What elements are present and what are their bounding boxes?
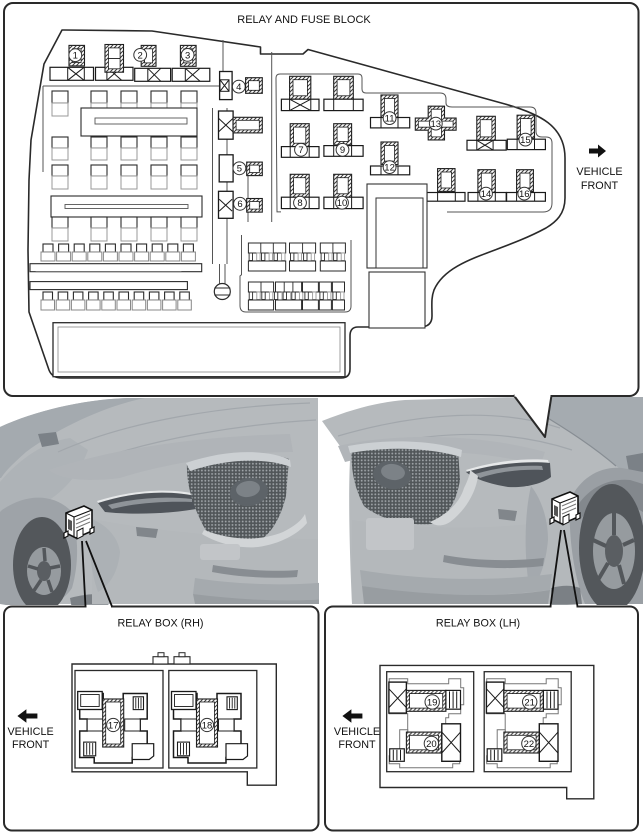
svg-text:FRONT: FRONT [12, 739, 50, 751]
svg-text:15: 15 [520, 135, 531, 146]
svg-text:20: 20 [426, 739, 437, 750]
svg-text:18: 18 [202, 720, 213, 731]
svg-text:2: 2 [138, 50, 143, 61]
svg-text:16: 16 [519, 189, 530, 200]
svg-text:9: 9 [340, 145, 345, 156]
svg-text:11: 11 [385, 114, 395, 125]
svg-text:4: 4 [236, 82, 241, 93]
svg-text:8: 8 [297, 198, 302, 209]
svg-text:FRONT: FRONT [338, 739, 376, 751]
svg-text:12: 12 [384, 163, 395, 174]
svg-text:10: 10 [337, 198, 348, 209]
svg-text:5: 5 [237, 164, 242, 175]
svg-text:VEHICLE: VEHICLE [334, 726, 380, 738]
svg-text:21: 21 [524, 697, 535, 708]
svg-text:3: 3 [185, 50, 190, 61]
svg-text:RELAY BOX (RH): RELAY BOX (RH) [118, 618, 204, 630]
svg-text:22: 22 [524, 739, 535, 750]
svg-text:17: 17 [108, 720, 119, 731]
svg-text:7: 7 [298, 145, 303, 156]
svg-text:6: 6 [237, 199, 242, 210]
svg-text:1: 1 [73, 51, 78, 62]
svg-text:VEHICLE: VEHICLE [7, 726, 53, 738]
svg-text:FRONT: FRONT [581, 180, 619, 192]
svg-text:RELAY BOX (LH): RELAY BOX (LH) [436, 618, 520, 630]
svg-text:VEHICLE: VEHICLE [576, 166, 622, 178]
svg-text:19: 19 [427, 697, 438, 708]
svg-text:14: 14 [481, 189, 492, 200]
svg-text:RELAY AND FUSE BLOCK: RELAY AND FUSE BLOCK [237, 14, 371, 26]
svg-text:13: 13 [431, 119, 442, 130]
